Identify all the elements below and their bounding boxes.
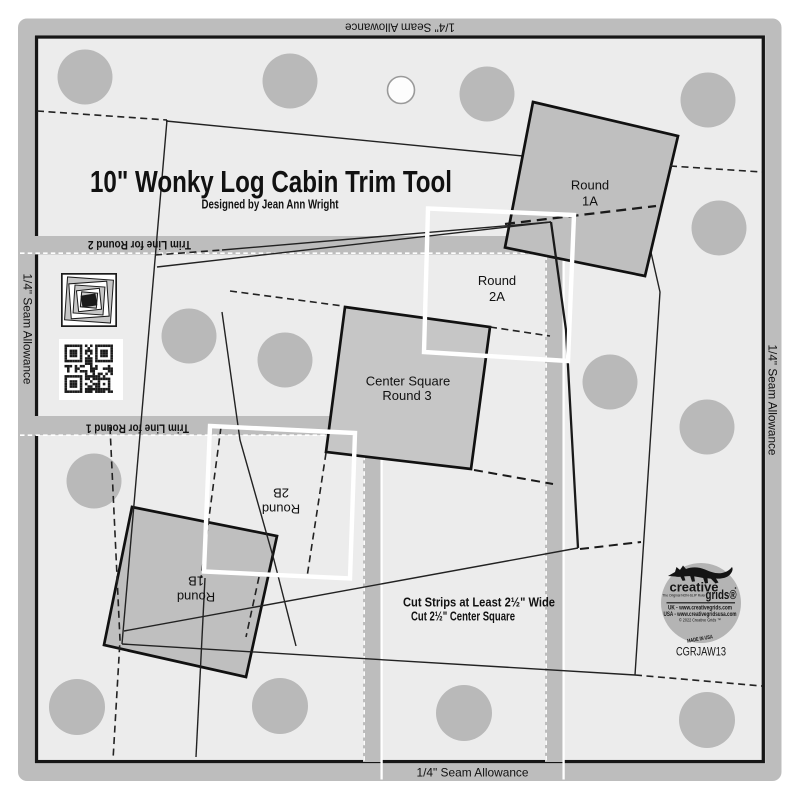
svg-text:2B: 2B (273, 486, 289, 501)
svg-text:1/4" Seam Allowance: 1/4" Seam Allowance (21, 274, 35, 385)
svg-text:Trim Line for Round 1: Trim Line for Round 1 (85, 422, 189, 434)
svg-text:1/4" Seam Allowance: 1/4" Seam Allowance (766, 345, 780, 456)
svg-text:Cut Strips at Least 2½" Wide: Cut Strips at Least 2½" Wide (403, 596, 555, 610)
svg-text:Round: Round (571, 178, 609, 193)
svg-text:1B: 1B (188, 574, 204, 589)
svg-text:Trim Line for Round 2: Trim Line for Round 2 (88, 238, 191, 250)
svg-text:2A: 2A (489, 289, 505, 304)
svg-text:10" Wonky Log Cabin Trim Tool: 10" Wonky Log Cabin Trim Tool (90, 164, 452, 199)
svg-text:© 2022 Creative Grids ™: © 2022 Creative Grids ™ (679, 617, 721, 623)
svg-text:1/4" Seam Allowance: 1/4" Seam Allowance (345, 21, 455, 35)
svg-text:Round 3: Round 3 (382, 388, 431, 403)
svg-text:The Original NON-SLIP Ruler: The Original NON-SLIP Ruler (662, 594, 706, 598)
svg-text:Round: Round (177, 590, 215, 605)
svg-text:Designed by Jean Ann Wright: Designed by Jean Ann Wright (202, 198, 340, 212)
svg-text:CGRJAW13: CGRJAW13 (676, 647, 726, 659)
svg-text:1A: 1A (582, 194, 598, 209)
svg-text:Center Square: Center Square (366, 374, 451, 389)
svg-text:Round: Round (262, 502, 300, 517)
svg-text:Cut 2½" Center Square: Cut 2½" Center Square (411, 610, 515, 624)
svg-text:Round: Round (478, 273, 516, 288)
svg-text:1/4" Seam Allowance: 1/4" Seam Allowance (417, 766, 529, 780)
svg-text:grids®: grids® (706, 588, 738, 602)
